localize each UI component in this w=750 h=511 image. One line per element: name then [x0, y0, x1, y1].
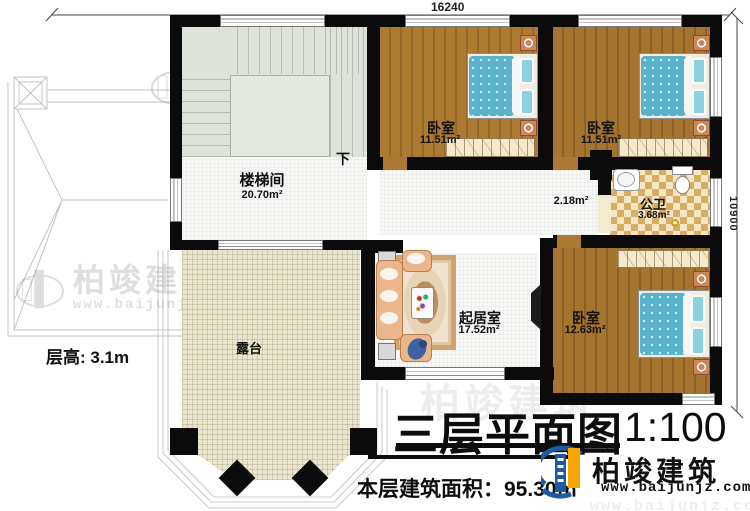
drawing-scale: 1:100 [624, 404, 727, 451]
company-logo-url: www.baijunjz.com [601, 480, 750, 496]
dimension-right-height: 10900 [727, 196, 739, 232]
bedroom3-mattress [640, 293, 686, 355]
room-label-bedroom3: 卧室 [572, 311, 600, 325]
bathroom-door-opening [598, 195, 611, 233]
bedroom3-blanket-fold [683, 293, 691, 355]
side-table [378, 343, 396, 360]
bedroom2-nightstand [693, 35, 710, 51]
bedroom1-pillow [520, 58, 534, 84]
company-logo-icon [541, 444, 593, 500]
room-area-bedroom2: 11.51m² [581, 135, 621, 146]
floor-plan-canvas: 柏竣建筑 www.baijunjz.com 柏竣建筑 www.baijunjz.… [0, 0, 750, 511]
floor-height-note: 层高: 3.1m [46, 343, 129, 368]
toilet-bowl [675, 176, 690, 194]
window-bedroom3-right [710, 297, 722, 347]
bedroom1-door-opening [383, 157, 407, 170]
room-label-terrace: 露台 [236, 342, 262, 355]
room-label-bedroom2: 卧室 [587, 121, 615, 135]
room-area-living: 17.52m² [459, 325, 500, 336]
bedroom1-nightstand [520, 35, 537, 51]
bedroom2-pillow [692, 89, 706, 115]
armchair-cushion [407, 253, 425, 264]
sofa-cushion [380, 268, 398, 280]
window-living-bottom [405, 367, 505, 380]
wall-stairwell-right [367, 27, 380, 170]
room-label-living: 起居室 [459, 311, 501, 325]
bedroom3-pillow [691, 295, 705, 323]
room-area-bedroom1: 11.51m² [420, 135, 460, 146]
hall-area-label: 2.18m² [554, 196, 589, 207]
sliding-door-terrace [218, 240, 323, 250]
wall-living-left [361, 253, 375, 380]
company-logo [541, 444, 593, 500]
room-area-bathroom: 3.68m² [638, 211, 670, 221]
wall-bedroom3-top [581, 235, 722, 248]
person-head [419, 340, 427, 348]
window-bedroom2-right [710, 57, 722, 117]
room-area-bedroom3: 12.63m² [565, 325, 606, 336]
coffee-table [411, 287, 434, 319]
bedroom1-blanket-fold [512, 56, 520, 116]
bedroom3-door-opening [557, 235, 581, 248]
watermark-logo-icon [15, 262, 65, 318]
stair-treads-left [182, 75, 230, 157]
wall-bathroom-left [598, 180, 611, 195]
window-stairwell-left [170, 178, 182, 222]
wall-living-bottom [505, 367, 554, 380]
wall-between-bedrooms [538, 27, 553, 157]
wall-bedrooms-bottom [407, 157, 553, 170]
watermark-url: www.baijunjz.com [590, 496, 750, 511]
window-bedroom1-top [405, 15, 510, 27]
bedroom2-wardrobe [618, 138, 708, 157]
terrace-column [350, 428, 377, 455]
bedroom2-door-opening [553, 157, 578, 170]
bedroom2-blanket-fold [684, 56, 692, 116]
room-label-stairwell: 楼梯间 [239, 173, 284, 188]
bedroom1-nightstand [520, 120, 537, 136]
bedroom3-wardrobe [617, 250, 710, 268]
bedroom1-pillow [520, 89, 534, 115]
wall-stairwell-bottom [323, 240, 375, 250]
bathroom-sink [617, 172, 635, 187]
bedroom3-nightstand [693, 271, 710, 287]
wall-stairwell-bottom [170, 240, 218, 250]
bedroom3-pillow [691, 327, 705, 355]
window-stairwell-top [220, 15, 325, 27]
toilet-tank [672, 166, 693, 175]
bedroom2-mattress [641, 56, 687, 116]
bedroom1-mattress [469, 56, 515, 116]
room-label-bedroom1: 卧室 [427, 121, 455, 135]
room-area-stairwell: 20.70m² [242, 190, 283, 201]
stair-landing [230, 75, 330, 157]
stair-treads-right [330, 27, 367, 157]
floor-drain [671, 219, 679, 227]
sofa-cushion [380, 312, 398, 324]
terrace-column [170, 428, 198, 455]
sofa-cushion [380, 290, 398, 302]
terrace-floor [182, 250, 360, 480]
stair-down-label: 下 [336, 152, 350, 166]
bedroom3-nightstand [693, 359, 710, 375]
wall-bathroom-corner [590, 150, 612, 180]
bedroom2-nightstand [693, 120, 710, 136]
window-bedroom2-top [578, 15, 682, 27]
dimension-top-width: 16240 [431, 0, 464, 14]
window-bathroom-right [710, 178, 722, 227]
wall-living-bottom [361, 367, 405, 380]
bedroom2-pillow [692, 58, 706, 84]
